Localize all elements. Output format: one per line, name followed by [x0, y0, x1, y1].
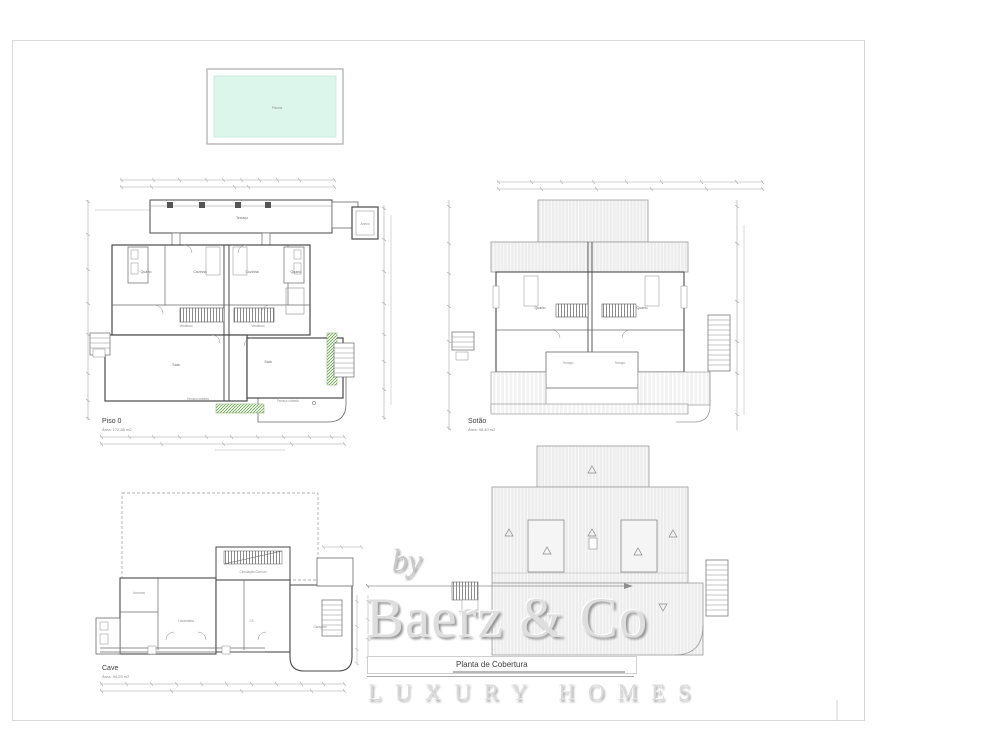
- plan-title-piso0: Piso 0: [102, 418, 122, 425]
- watermark-brand: Baerz & Co: [366, 586, 652, 651]
- room-label: Quarto: [141, 270, 152, 274]
- room-label: Vestíbulo: [251, 324, 264, 328]
- room-label: Garagem: [313, 625, 327, 629]
- room-label: Vestíbulo: [179, 324, 192, 328]
- cobertura-label-box: Planta de Cobertura: [367, 656, 637, 674]
- plan-area-piso0: Área: 172,85 m2: [102, 427, 132, 432]
- plan-area-sotao: Área: 98,40 m2: [468, 427, 496, 432]
- plan-cave: Circulação Comum Arrum: [96, 493, 363, 693]
- room-label: Cozinha: [193, 270, 206, 274]
- room-label-terraco: Terraço: [236, 216, 248, 220]
- pool: Piscina: [207, 69, 343, 144]
- room-label: Terraço: [615, 361, 626, 365]
- room-label: I.S.: [250, 619, 255, 623]
- room-label-anexo: Anexo: [360, 222, 369, 226]
- exterior-stair-icon: [706, 560, 728, 616]
- room-label: Quarto: [535, 306, 546, 310]
- room-label: Terraço coberto: [187, 397, 209, 401]
- room-label: Quarto: [291, 270, 302, 274]
- cobertura-note-line: [453, 671, 625, 673]
- exterior-stair-icon: [334, 343, 354, 377]
- room-label: Arrumos: [133, 591, 145, 595]
- interior-stair-icon: [322, 600, 342, 636]
- watermark-rule: [367, 676, 634, 677]
- plan-piso0: Terraço Anexo: [86, 178, 391, 450]
- room-label: Circulação Comum: [239, 570, 266, 574]
- pool-label: Piscina: [272, 106, 283, 110]
- exterior-stair-icon: [708, 315, 730, 371]
- room-label: Quarto: [637, 306, 648, 310]
- exterior-stair-icon: [90, 333, 110, 357]
- plan-sotao: Quarto Quarto Terraço Terraço Sotão: [447, 180, 764, 432]
- plan-sheet-page: Piscina Terraço Anexo: [0, 0, 1000, 750]
- room-label: Cozinha: [245, 270, 258, 274]
- plan-title-cave: Cave: [102, 665, 118, 672]
- room-label: Lavandaria: [178, 619, 194, 623]
- exterior-stair-icon: [452, 332, 474, 360]
- room-label: Terraço: [563, 361, 574, 365]
- watermark-tagline: LUXURY HOMES: [368, 680, 704, 706]
- room-label: Terraço coberto: [277, 399, 299, 403]
- room-label: Sala: [264, 360, 271, 364]
- room-label: Sala: [172, 363, 179, 367]
- plan-area-cave: Área: 94,25 m2: [102, 674, 130, 679]
- watermark-by: by: [392, 542, 422, 579]
- plan-title-sotao: Sotão: [468, 418, 486, 425]
- plan-title-cobertura: Planta de Cobertura: [456, 660, 528, 669]
